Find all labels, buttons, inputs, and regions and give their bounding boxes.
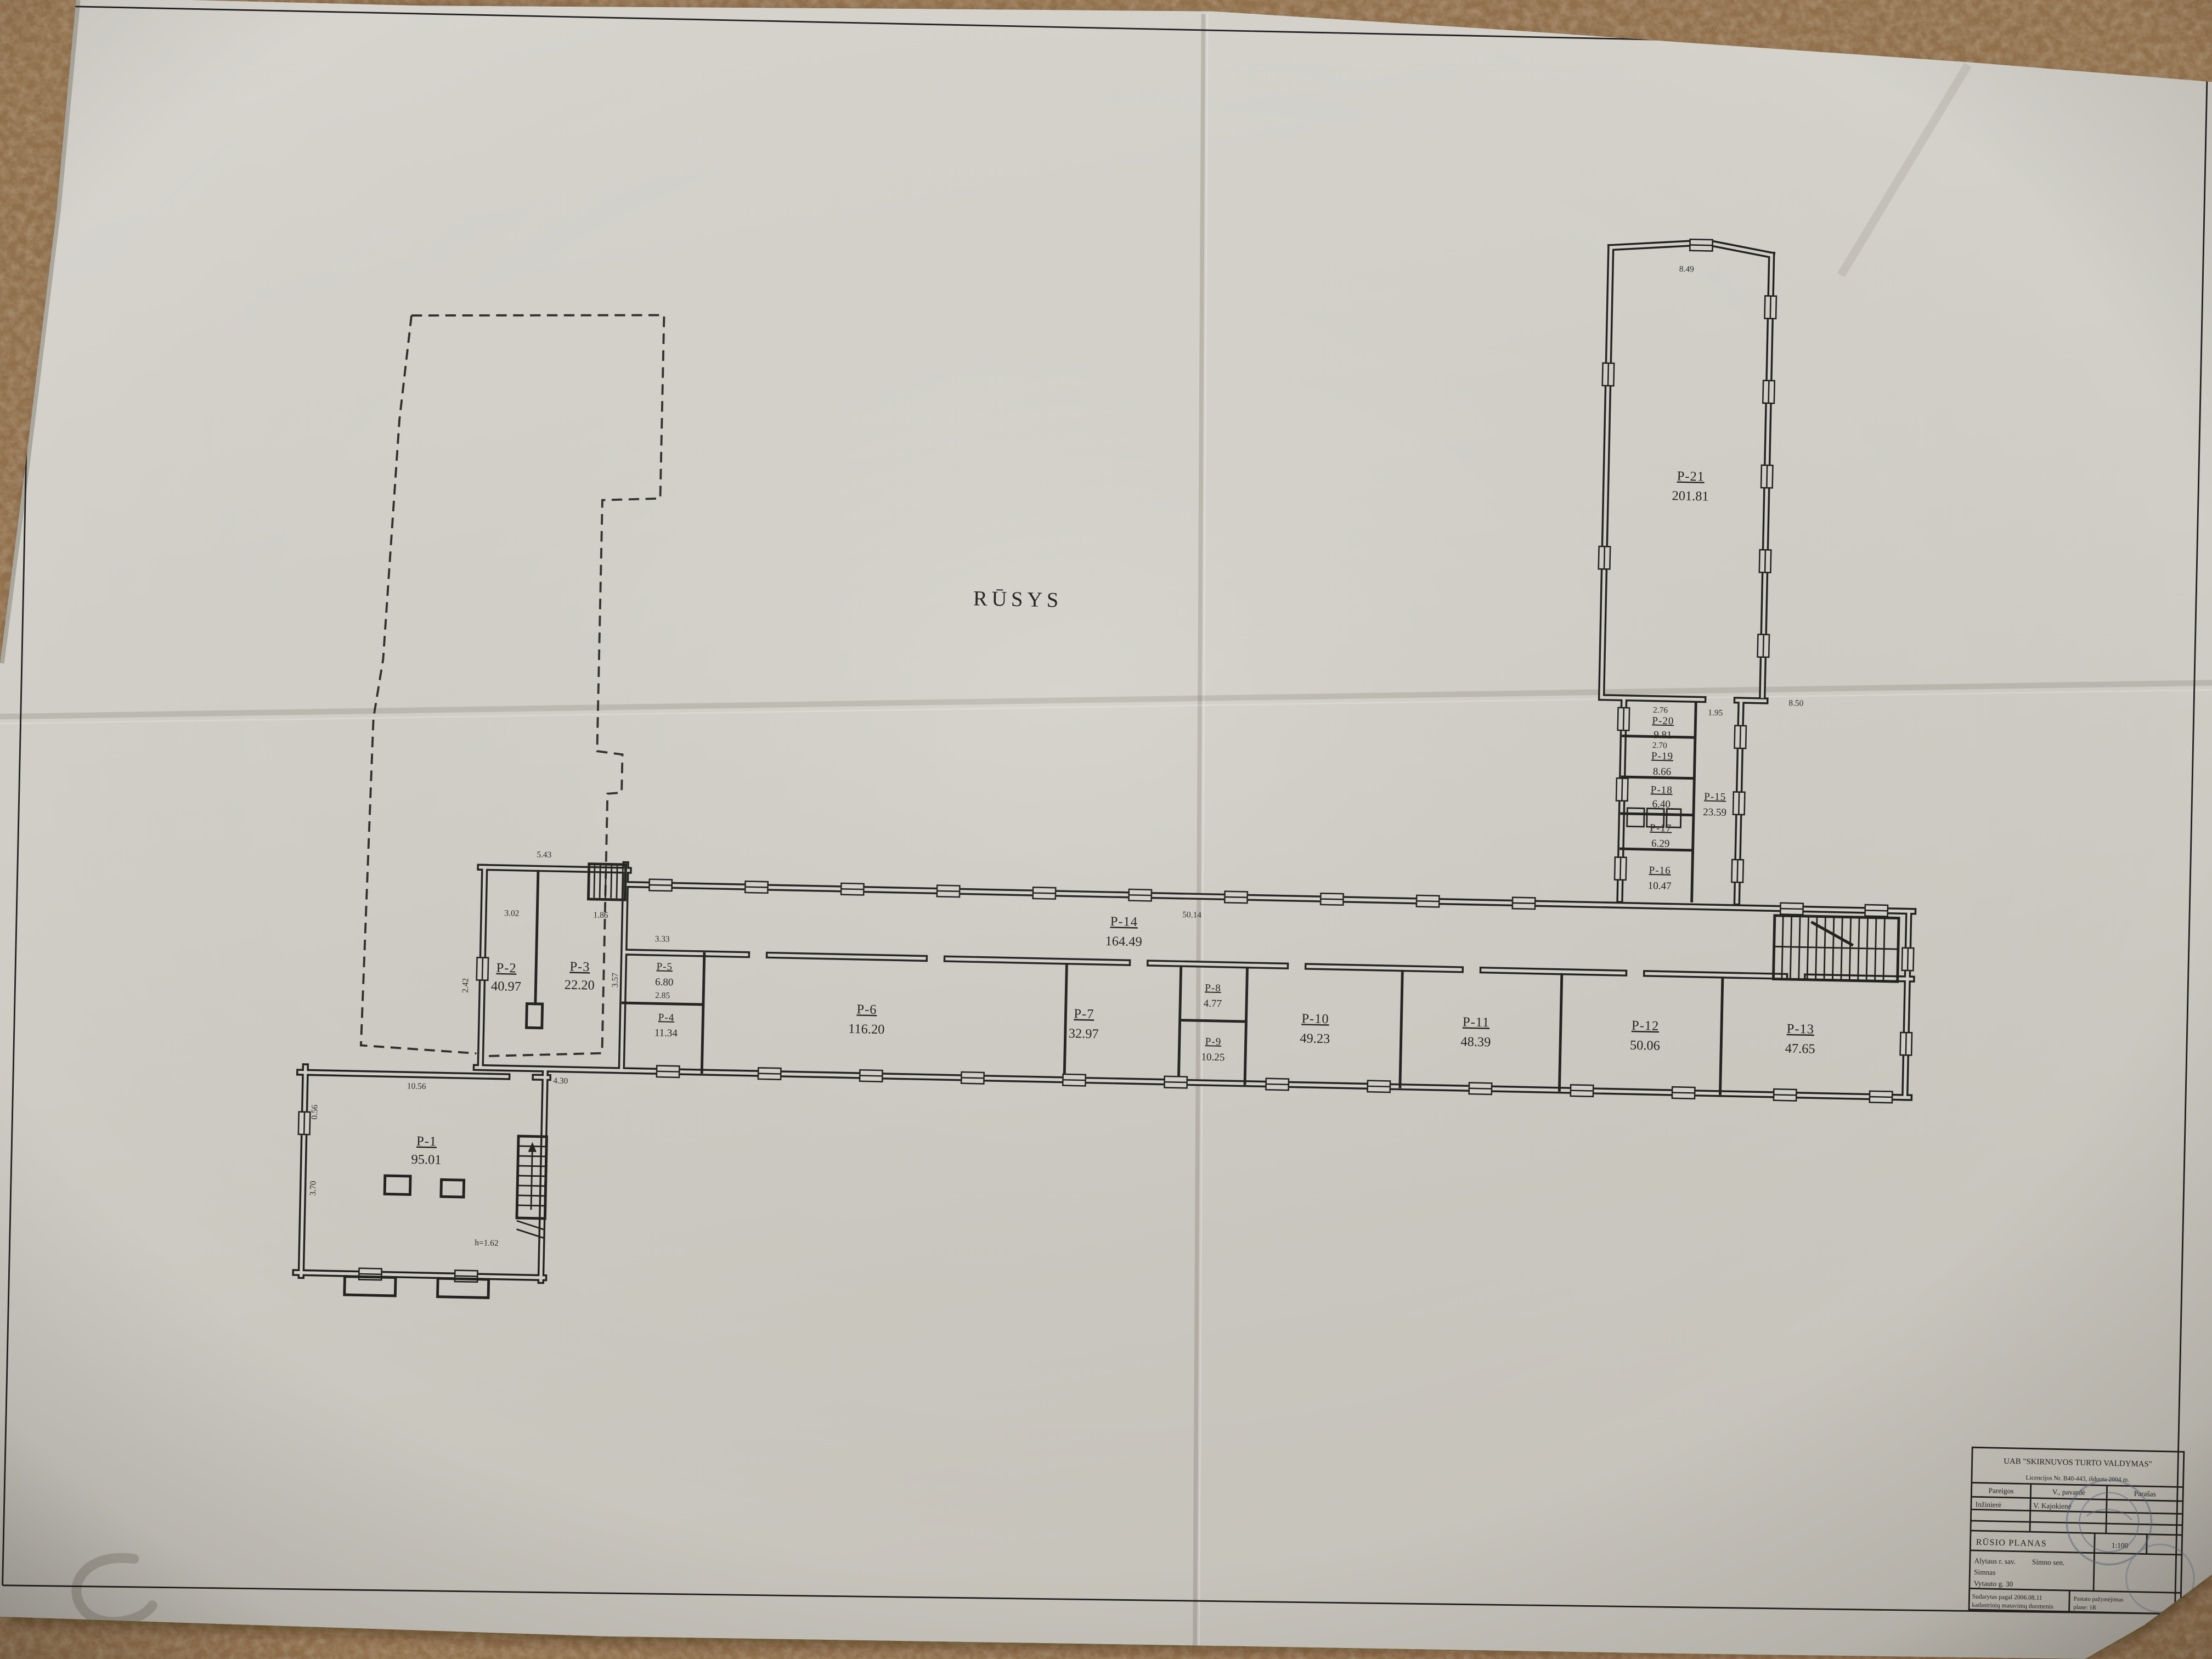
- floor-plan-photo: 5.43 3.02 1.86 2.42 3.33 2.85 4.30 3.57 …: [0, 0, 2212, 1659]
- photo-vignette: [0, 0, 2212, 1659]
- photo-scene: 5.43 3.02 1.86 2.42 3.33 2.85 4.30 3.57 …: [0, 0, 2212, 1659]
